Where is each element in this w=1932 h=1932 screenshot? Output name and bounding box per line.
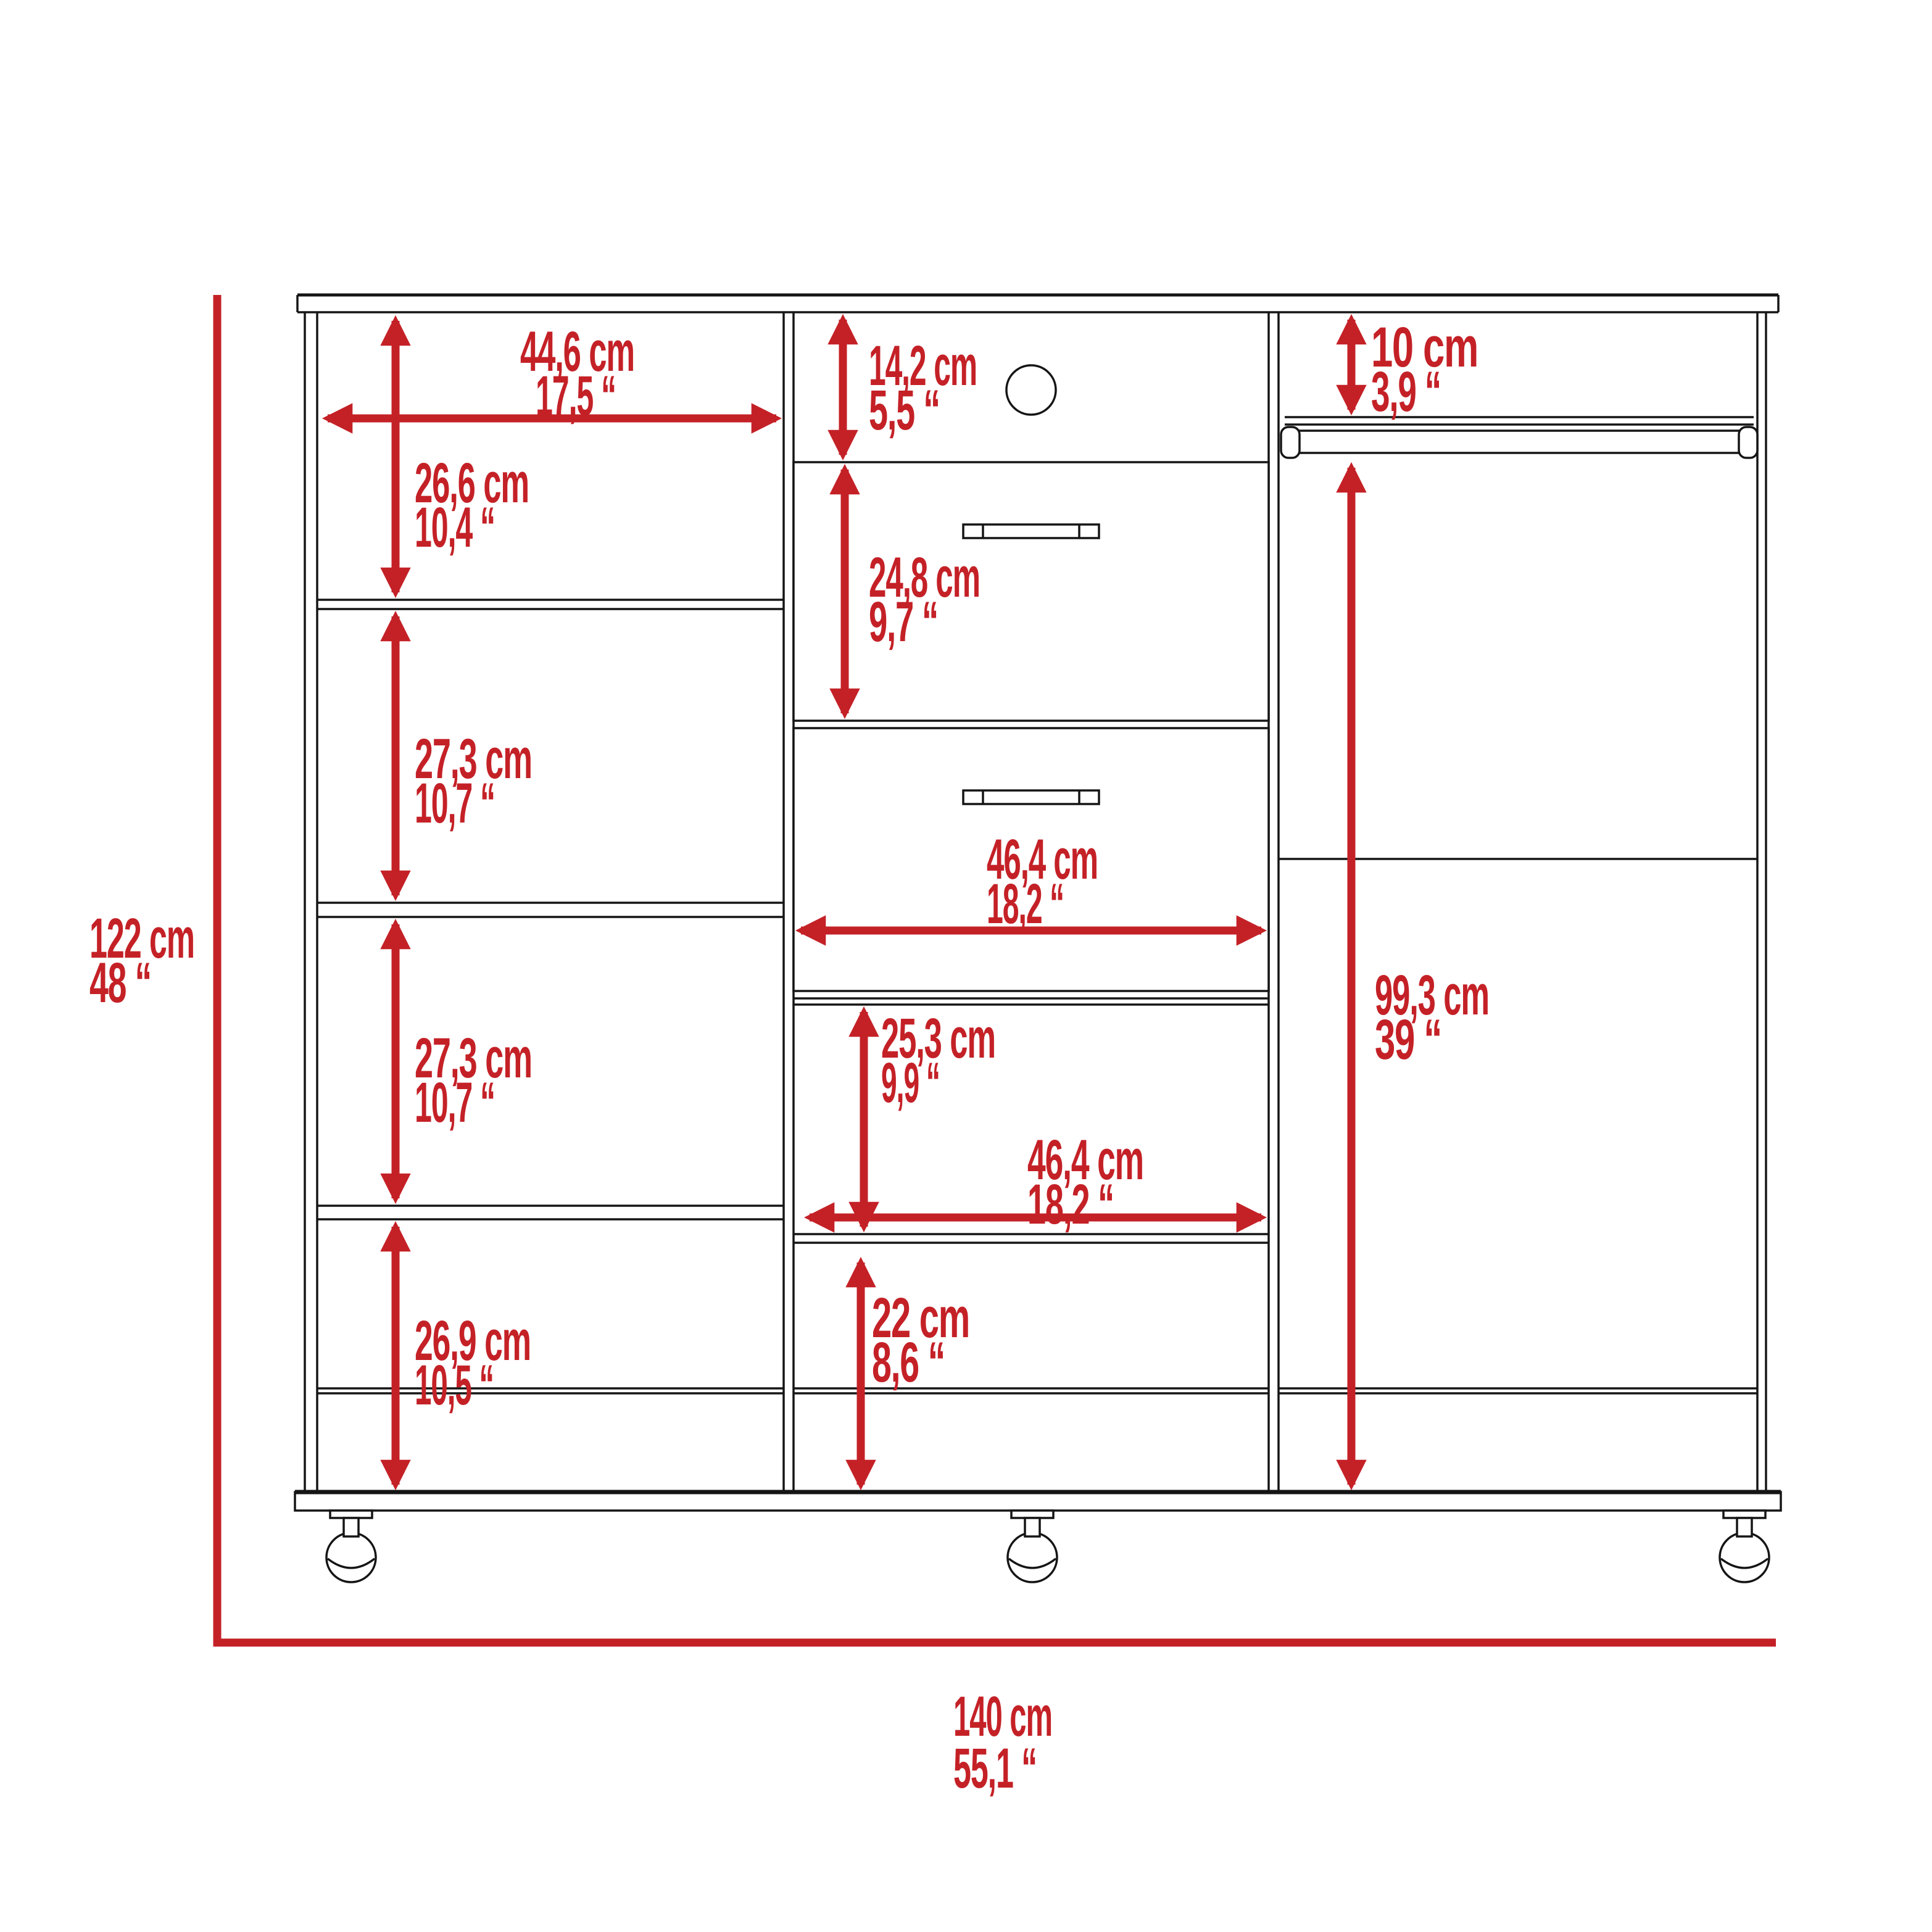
dimension-diagram: 44,6 cm 17,5 “ 26,6 cm 10,4 “ 27,3 cm 10… [0, 0, 1932, 1932]
dim-label-drawer-width-in: 18,2 “ [987, 873, 1064, 935]
top-panel [297, 295, 1778, 312]
dim-label-compartment-1-in: 10,4 “ [415, 496, 495, 559]
dim-label-overall-width-in: 55,1 “ [953, 1737, 1037, 1800]
rod-bracket-right [1739, 427, 1757, 458]
dim-label-open-shelf-height-in: 9,9 “ [881, 1051, 940, 1114]
rod-bracket-left [1281, 427, 1300, 458]
right-side-panel [1757, 312, 1766, 1492]
base-board [295, 1492, 1781, 1511]
drawer-1 [794, 462, 1269, 721]
bottom-rail-line [317, 1388, 1757, 1393]
left-shelf-2 [317, 903, 784, 917]
dim-label-hanging-height-in: 39 “ [1375, 1008, 1441, 1071]
dim-label-left-width-in: 17,5 “ [536, 365, 616, 428]
hanging-rod [1281, 417, 1757, 458]
left-shelf-3 [317, 1206, 784, 1219]
caster-left [326, 1511, 376, 1582]
drawer-1-handle [963, 524, 1099, 538]
dim-label-drawer-height-in: 9,7 “ [869, 591, 938, 653]
dim-label-compartment-4-in: 10,5 “ [415, 1354, 494, 1417]
left-side-panel [305, 312, 317, 1492]
grommet-hole [1006, 365, 1056, 415]
caster-right [1720, 1511, 1769, 1582]
divider-left-middle [784, 312, 794, 1492]
dim-label-rod-clearance-in: 3,9 “ [1371, 360, 1441, 423]
caster-center [1008, 1511, 1057, 1582]
divider-middle-right [1269, 312, 1279, 1492]
left-shelves [317, 600, 784, 1219]
dim-label-compartment-2-in: 10,7 “ [415, 772, 495, 835]
drawer-2-handle [963, 790, 1099, 804]
dim-label-open-shelf-width-in: 18,2 “ [1027, 1173, 1114, 1236]
dim-label-compartment-3-in: 10,7 “ [415, 1071, 495, 1134]
dim-label-overall-height-in: 48 “ [89, 951, 151, 1014]
dim-label-bottom-opening-in: 8,6 “ [872, 1331, 945, 1394]
left-shelf-1 [317, 600, 784, 609]
dim-label-top-opening-in: 5,5 “ [869, 379, 940, 442]
